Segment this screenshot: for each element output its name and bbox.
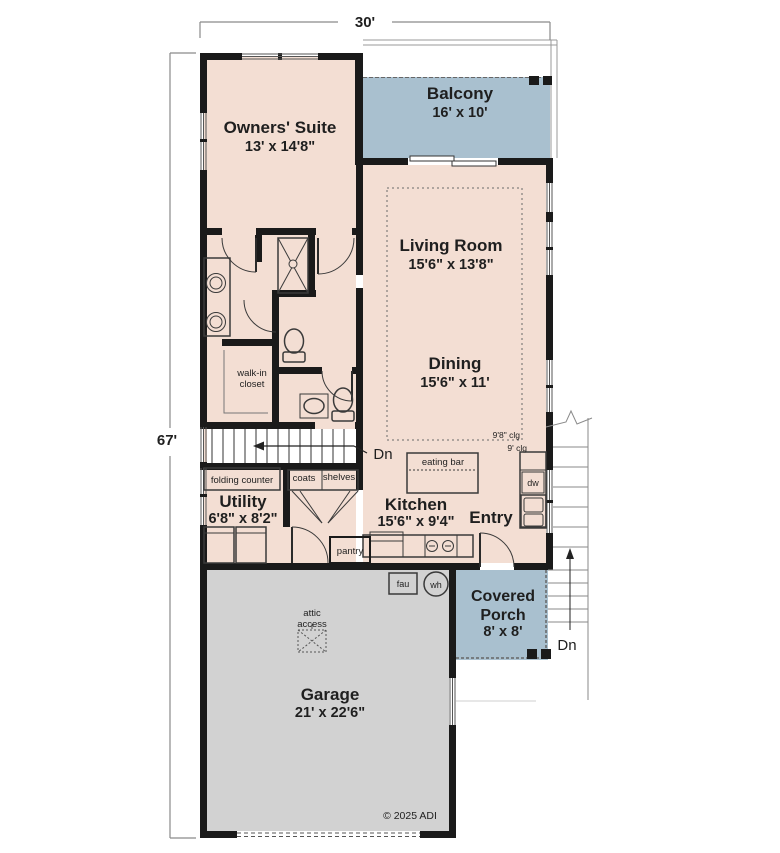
label-stairs-down-exterior: Dn [557, 637, 576, 654]
room-size-owners-suite: 13' x 14'8" [245, 139, 315, 155]
room-size-utility: 6'8" x 8'2" [208, 511, 277, 527]
window-living-right-1 [547, 183, 552, 212]
room-size-garage: 21' x 22'6" [295, 705, 365, 721]
label-attic-access-1: attic [303, 608, 321, 619]
porch-post [527, 649, 537, 659]
dimension-height: 67' [157, 432, 177, 449]
garage-door-opening [237, 833, 420, 837]
room-label-owners-suite: Owners' Suite [224, 118, 337, 137]
room-label-dining: Dining [429, 354, 482, 373]
window-dining-right [546, 360, 553, 412]
room-label-balcony: Balcony [427, 84, 494, 103]
room-label-living: Living Room [400, 236, 503, 255]
label-pantry: pantry [337, 546, 364, 557]
room-label-garage: Garage [301, 685, 360, 704]
label-furnace: fau [397, 579, 410, 589]
room-size-porch: 8' x 8' [483, 624, 522, 640]
dimension-width: 30' [355, 14, 375, 31]
room-label-porch-2: Porch [480, 607, 525, 624]
floor-plan-page: 30' 67' Owners' Suite 13' x 14'8" Balcon… [0, 0, 780, 853]
room-label-kitchen: Kitchen [385, 495, 447, 514]
label-walk-in-closet-2: closet [240, 379, 265, 390]
label-walk-in-closet-1: walk-in [236, 368, 267, 379]
copyright-text: © 2025 ADI [383, 810, 437, 822]
label-dishwasher: dw [527, 478, 539, 488]
window-kitchen-right [546, 470, 553, 533]
floor-plan-drawing: 30' 67' Owners' Suite 13' x 14'8" Balcon… [0, 0, 780, 853]
floor-fills [203, 56, 550, 831]
room-label-porch-1: Covered [471, 588, 535, 605]
label-coats: coats [293, 473, 316, 484]
room-label-entry: Entry [469, 508, 513, 527]
balcony-post [529, 76, 539, 85]
window-suite-left [200, 113, 207, 170]
arrowhead-up [566, 548, 574, 559]
label-attic-access-2: access [297, 619, 327, 630]
label-shelves: shelves [323, 472, 355, 483]
room-size-living: 15'6" x 13'8" [408, 257, 493, 273]
window-garage-right [450, 678, 455, 725]
balcony-post [543, 76, 552, 85]
room-size-kitchen: 15'6" x 9'4" [377, 514, 454, 530]
label-eating-bar: eating bar [422, 457, 464, 468]
label-water-heater: wh [429, 580, 442, 590]
room-size-balcony: 16' x 10' [432, 105, 487, 121]
porch-post [541, 649, 551, 659]
label-stairs-down-interior: Dn [373, 446, 392, 463]
room-label-utility: Utility [219, 492, 267, 511]
label-ceiling-high: 9'8" clg [493, 430, 521, 440]
room-size-dining: 15'6" x 11' [420, 375, 489, 391]
window-living-right-2 [546, 222, 553, 275]
label-ceiling-low: 9' clg [507, 443, 527, 453]
label-folding-counter: folding counter [211, 475, 273, 486]
